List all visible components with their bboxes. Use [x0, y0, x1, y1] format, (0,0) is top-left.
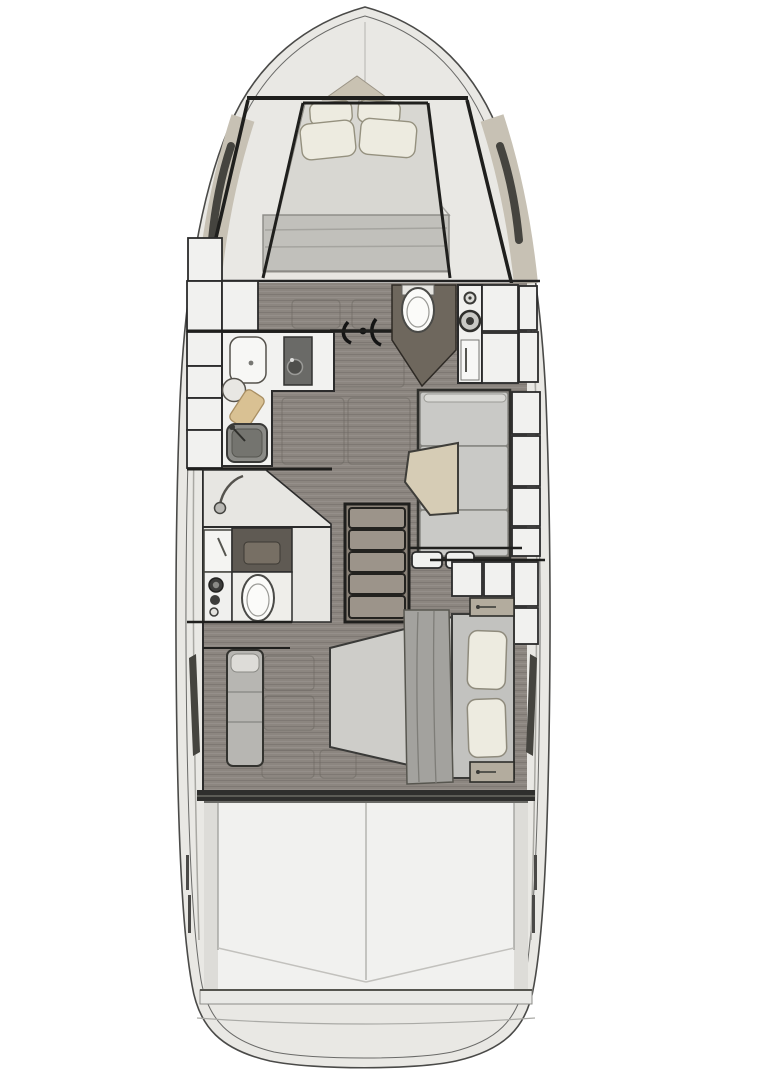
stair-tread — [349, 508, 405, 528]
side-cell — [512, 436, 540, 486]
wheel-hub — [466, 317, 474, 325]
vberth-blanket — [263, 215, 449, 271]
burner-dot — [290, 358, 294, 362]
yacht-floorplan-diagram — [0, 0, 763, 1080]
washer-door-inner — [213, 582, 219, 588]
side-cell — [514, 562, 538, 606]
pillow-large-left — [299, 119, 356, 160]
fitting-right2 — [532, 895, 535, 933]
side-cell — [519, 332, 538, 382]
fridge-cell — [482, 333, 518, 383]
gauge-small-dot — [468, 296, 471, 299]
cockpit-wall-left — [204, 801, 218, 989]
vanity — [204, 530, 232, 572]
wardrobe-cell — [484, 562, 512, 596]
transom-step — [200, 990, 532, 1004]
console-door — [461, 340, 479, 380]
locker-cell — [188, 238, 222, 281]
locker-cell — [222, 281, 258, 331]
nightstand-knob2 — [476, 770, 480, 774]
aft-bench-pad — [231, 654, 259, 672]
pillow-large-right — [359, 118, 418, 159]
stair-tread — [349, 596, 405, 618]
head-counter-panel — [244, 542, 280, 564]
burner-icon — [288, 360, 303, 375]
locker-cell — [187, 398, 222, 430]
companionway-stairs — [345, 504, 409, 622]
locker-cell — [187, 281, 222, 331]
sink-drain-dot — [249, 361, 254, 366]
cockpit-wall-right — [514, 801, 528, 989]
stair-tread — [349, 552, 405, 572]
side-cell — [512, 488, 540, 526]
aft-pillow-top — [467, 630, 507, 689]
aft-pillow-bottom — [467, 698, 507, 757]
floorplan-canvas — [0, 0, 763, 1080]
dinette — [405, 390, 540, 568]
side-cell — [512, 392, 540, 434]
fitting-right — [534, 855, 537, 890]
aft-blanket — [404, 610, 453, 784]
washer-knob2-icon — [210, 608, 218, 616]
starboard-head — [392, 285, 538, 386]
locker-cell — [187, 332, 222, 366]
fridge-cell — [482, 285, 518, 331]
shower-head-icon — [215, 503, 226, 514]
cockpit — [186, 790, 537, 1024]
locker-cell — [187, 430, 222, 468]
locker-cell — [187, 366, 222, 398]
galley-sink — [230, 337, 266, 383]
stair-tread — [349, 530, 405, 550]
side-cell — [512, 528, 540, 556]
side-cell — [514, 608, 538, 644]
nightstand-knob — [476, 605, 480, 609]
stair-tread — [349, 574, 405, 594]
fitting-left2 — [188, 895, 191, 933]
side-cell — [519, 286, 537, 330]
blanket-fold2 — [265, 246, 447, 247]
faucet-base — [229, 424, 235, 430]
washer-knob-icon — [210, 595, 220, 605]
dinette-backrest — [424, 394, 506, 402]
wardrobe-cell — [452, 562, 482, 596]
fitting-left — [186, 855, 189, 890]
dinette-cushion-mid — [452, 446, 508, 510]
